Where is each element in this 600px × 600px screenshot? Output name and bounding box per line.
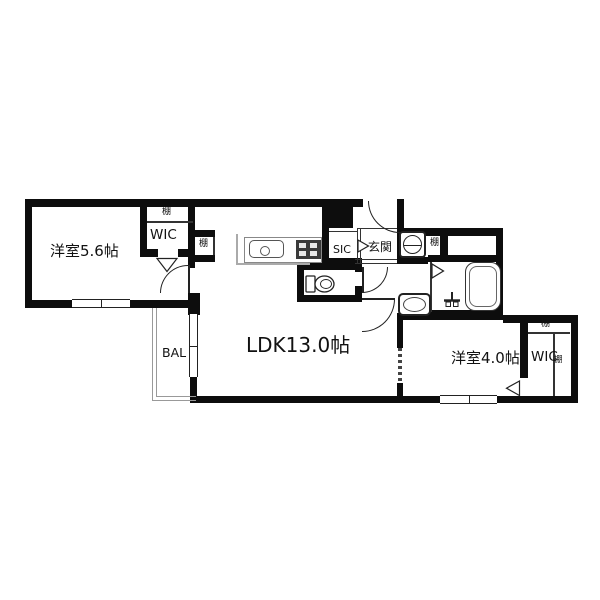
bath-door-triangle [432,264,444,278]
wic-left-door-triangle [157,259,177,272]
room-label-ldk: LDK13.0帖 [246,335,350,355]
room-label-bedroom-left: 洋室5.6帖 [50,244,119,259]
fixture-icons-layer [0,0,600,600]
shelf-label: 棚 [554,356,563,365]
room-label-bedroom-right: 洋室4.0帖 [451,351,520,366]
room-label-sic: SIC [333,244,351,255]
room-label-wic-left: WIC [150,229,177,243]
shelf-label: 棚 [430,239,439,248]
shelf-label: 棚 [541,320,550,329]
room-label-balcony: BAL [162,347,186,360]
floorplan-canvas: 洋室5.6帖 LDK13.0帖 洋室4.0帖 WIC WIC SIC 玄関 BA… [0,0,600,600]
stove-icon [296,240,321,259]
sic-door-triangle [358,240,369,252]
shelf-label: 棚 [162,208,171,217]
room-label-genkan: 玄関 [368,241,392,253]
shelf-label: 棚 [199,240,208,249]
toilet-icon [306,276,334,292]
faucet-icon [444,292,460,307]
wic-right-door-triangle [507,381,520,396]
